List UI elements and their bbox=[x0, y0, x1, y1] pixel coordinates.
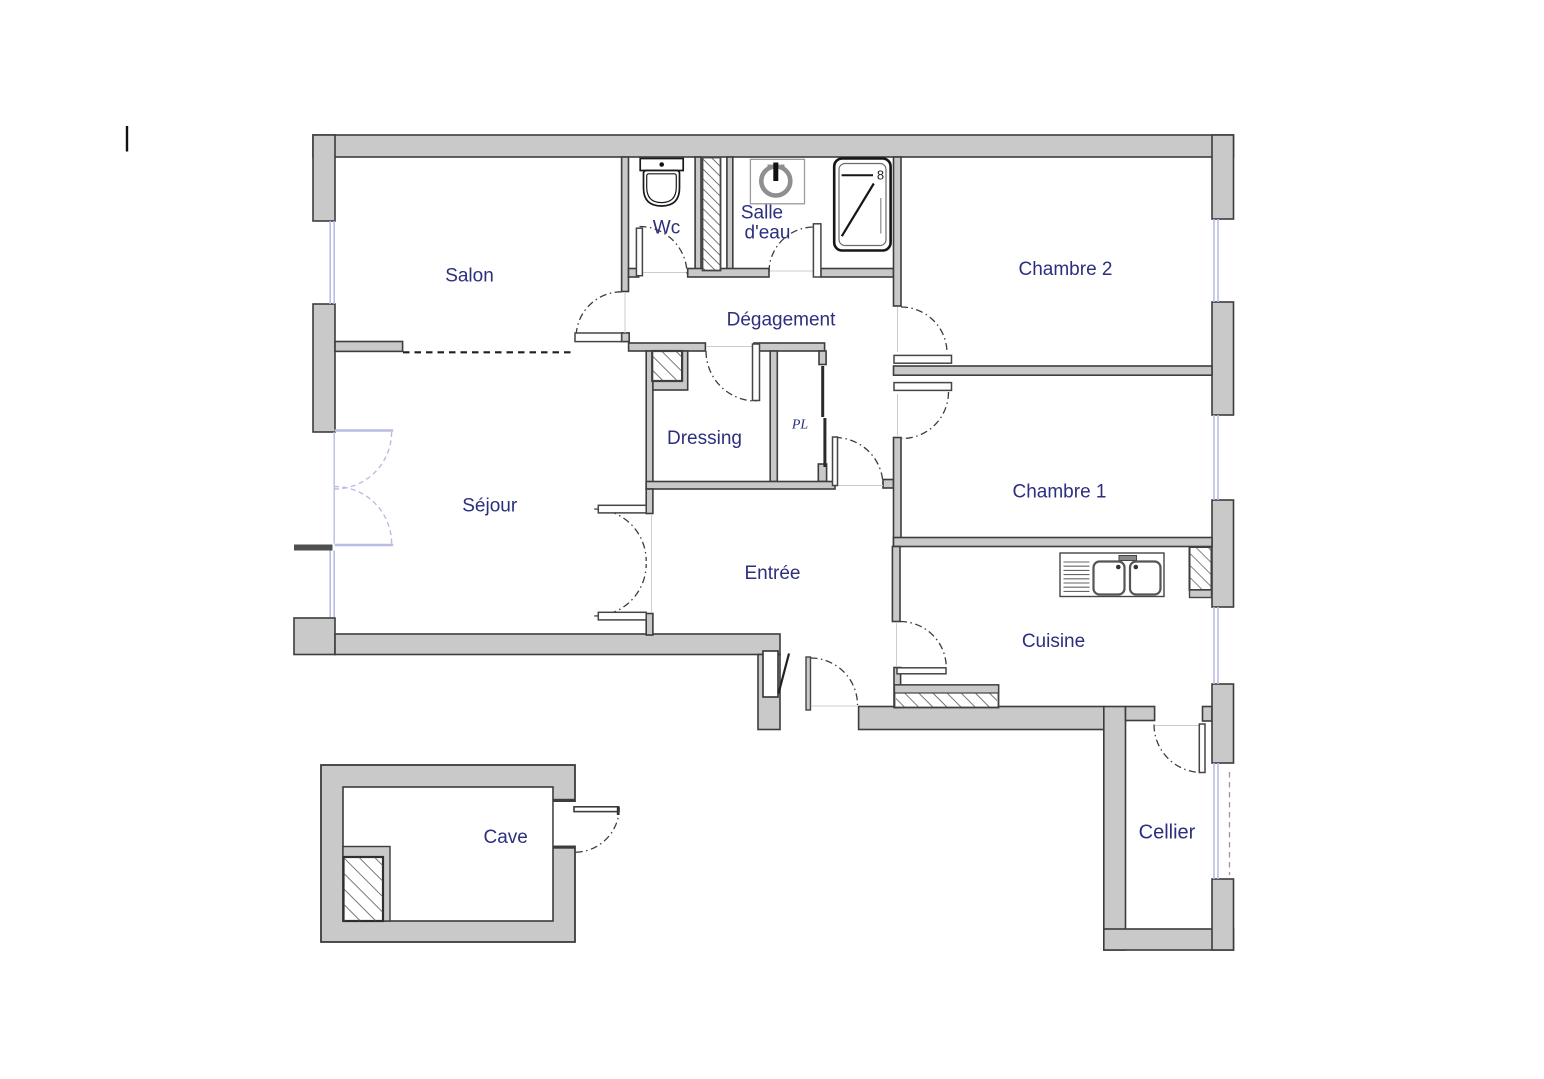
svg-text:8: 8 bbox=[877, 168, 884, 183]
svg-text:Salle: Salle bbox=[741, 203, 783, 224]
svg-text:Cuisine: Cuisine bbox=[1022, 631, 1085, 652]
svg-text:PL: PL bbox=[791, 418, 809, 433]
svg-text:Dégagement: Dégagement bbox=[727, 310, 837, 331]
svg-text:Séjour: Séjour bbox=[462, 496, 518, 517]
svg-text:Chambre 1: Chambre 1 bbox=[1013, 482, 1107, 503]
svg-text:Cave: Cave bbox=[484, 827, 528, 848]
svg-text:Chambre 2: Chambre 2 bbox=[1019, 259, 1113, 280]
svg-text:d'eau: d'eau bbox=[745, 223, 791, 244]
svg-text:Entrée: Entrée bbox=[745, 563, 801, 584]
svg-text:Cellier: Cellier bbox=[1139, 822, 1196, 844]
svg-text:Wc: Wc bbox=[653, 218, 680, 239]
svg-text:Dressing: Dressing bbox=[667, 428, 742, 449]
svg-text:Salon: Salon bbox=[445, 266, 494, 287]
